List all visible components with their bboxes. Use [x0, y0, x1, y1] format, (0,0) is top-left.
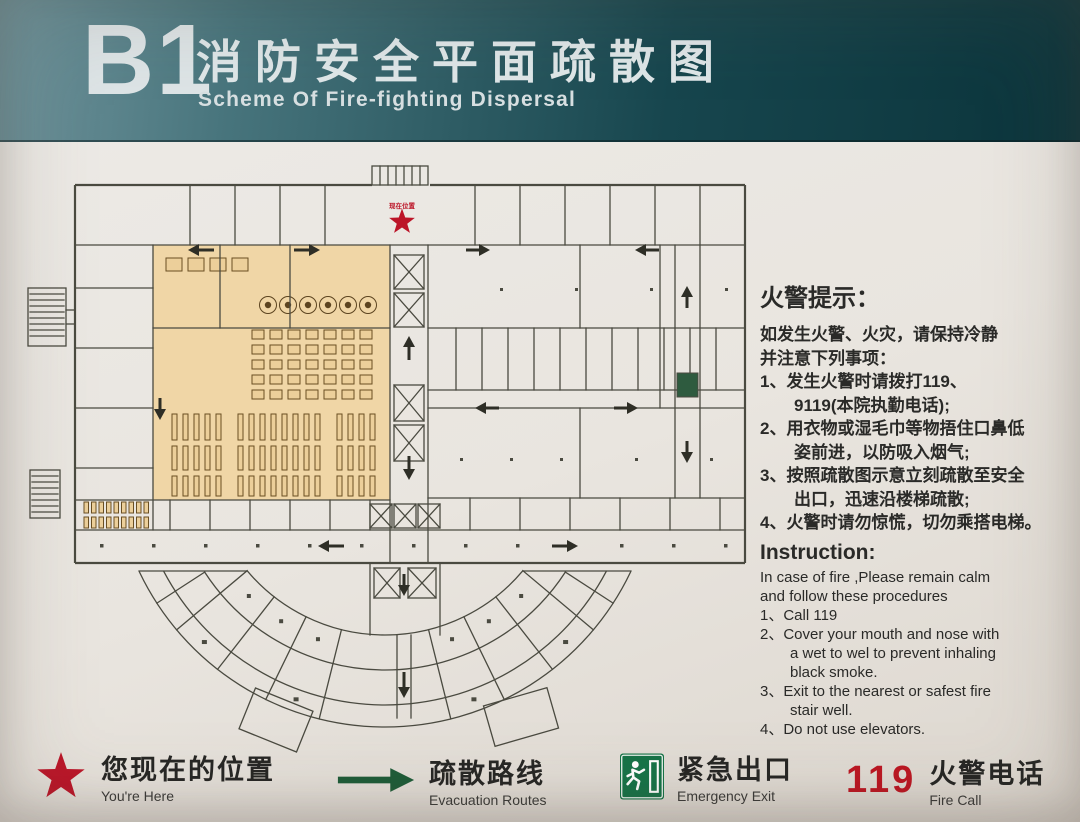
legend-emergency-exit: 紧急出口 Emergency Exit [620, 748, 793, 804]
instruction-line: In case of fire ,Please remain calm [760, 568, 1078, 587]
instruction-title: Instruction: [760, 541, 1078, 565]
notice-line: 姿前进，以防吸入烟气; [760, 441, 1078, 465]
notice-line: 1、发生火警时请拨打119、 [760, 370, 1078, 394]
legend-label-zh: 您现在的位置 [101, 748, 275, 787]
legend-label-zh: 紧急出口 [677, 748, 793, 787]
notice-line: 2、用衣物或湿毛巾等物捂住口鼻低 [760, 417, 1078, 441]
legend-label-en: Emergency Exit [677, 788, 793, 804]
notice-line: 3、按照疏散图示意立刻疏散至安全 [760, 464, 1078, 488]
evacuation-arrow-icon [336, 765, 416, 795]
instruction-line: 4、Do not use elevators. [760, 720, 1078, 739]
legend-label-en: You're Here [101, 788, 275, 804]
legend-label-zh: 火警电话 [929, 752, 1045, 791]
legend-evacuation-routes: 疏散路线 Evacuation Routes [336, 752, 547, 808]
you-are-here-star: 现在位置 [389, 201, 416, 233]
legend-label-zh: 疏散路线 [429, 752, 547, 791]
notice-line: 9119(本院执勤电话); [760, 394, 1078, 418]
instruction-line: 3、Exit to the nearest or safest fire [760, 682, 1078, 701]
instruction-line: black smoke. [760, 663, 1078, 682]
fire-notice-panel: 火警提示： 如发生火警、火灾，请保持冷静 并注意下列事项： 1、发生火警时请拨打… [760, 278, 1078, 739]
evacuation-sign: B1 消防安全平面疏散图 Scheme Of Fire-fighting Dis… [0, 0, 1080, 822]
title-en: Scheme Of Fire-fighting Dispersal [198, 88, 576, 112]
instruction-line: 1、Call 119 [760, 606, 1078, 625]
svg-text:现在位置: 现在位置 [389, 201, 416, 210]
instruction-line: a wet to wel to prevent inhaling [760, 644, 1078, 663]
notice-line: 并注意下列事项： [760, 347, 1078, 371]
instruction-line: stair well. [760, 701, 1078, 720]
instruction-line: 2、Cover your mouth and nose with [760, 625, 1078, 644]
notice-title: 火警提示： [760, 278, 1078, 313]
floor-label: B1 [82, 8, 214, 113]
emergency-exit-icon [620, 753, 664, 800]
floor-plan: 现在位置 [20, 158, 760, 766]
notice-line: 出口，迅速沿楼梯疏散; [760, 488, 1078, 512]
fire-call-119-badge: 119 [846, 759, 916, 802]
title-zh: 消防安全平面疏散图 [196, 26, 727, 92]
you-are-here-star-icon [34, 749, 88, 803]
notice-line: 4、火警时请勿惊慌，切勿乘搭电梯。 [760, 511, 1078, 535]
legend-label-en: Fire Call [929, 792, 1045, 808]
notice-line: 如发生火警、火灾，请保持冷静 [760, 323, 1078, 347]
header-band: B1 消防安全平面疏散图 Scheme Of Fire-fighting Dis… [0, 0, 1080, 142]
instruction-line: and follow these procedures [760, 587, 1078, 606]
legend-fire-call: 119 火警电话 Fire Call [846, 752, 1045, 808]
legend-you-are-here: 您现在的位置 You're Here [34, 748, 275, 804]
legend-label-en: Evacuation Routes [429, 792, 547, 808]
